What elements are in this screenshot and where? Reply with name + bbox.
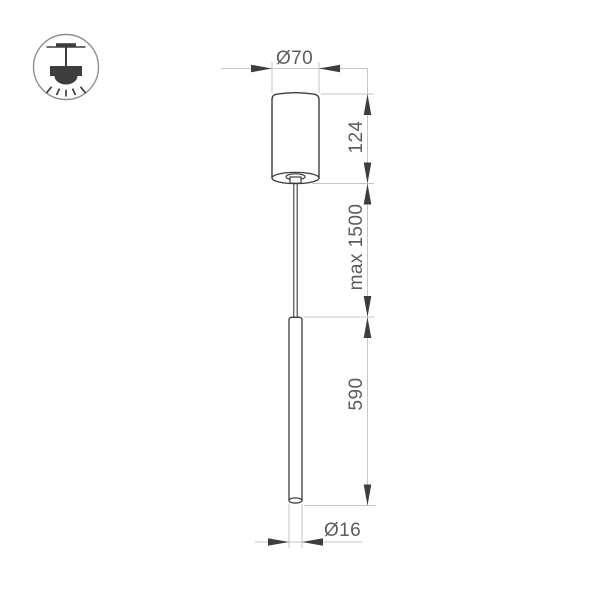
arrow-suspension-down — [364, 296, 372, 317]
icon-canopy-bar — [56, 43, 76, 47]
cord-grip-body — [290, 177, 301, 183]
label-canopy-height: 124 — [346, 121, 367, 154]
lamp-tube-bottom-rim — [289, 498, 302, 503]
arrow-bottom-diameter-left — [268, 538, 289, 546]
arrow-bottom-diameter-right — [302, 538, 323, 546]
label-suspension-length: max 1500 — [346, 204, 367, 291]
arrow-tube-length-down — [364, 485, 372, 506]
arrow-top-diameter-left — [251, 65, 272, 73]
label-tube-diameter: Ø16 — [324, 520, 361, 541]
icon-lamp-shade — [50, 66, 82, 76]
canopy-body — [272, 93, 319, 178]
arrow-tube-length-up — [364, 317, 372, 338]
pendant-lamp-outline — [272, 93, 319, 503]
label-tube-length: 590 — [346, 378, 367, 411]
arrow-canopy-height-up — [364, 94, 372, 115]
pendant-lamp-dimension-drawing: Ø70 124 max 1500 590 Ø16 — [0, 0, 600, 600]
arrow-top-diameter-right — [319, 65, 340, 73]
lamp-tube-body — [289, 317, 302, 500]
arrow-suspension-up — [364, 184, 372, 205]
label-top-diameter: Ø70 — [276, 48, 313, 69]
ceiling-pendant-light-icon — [34, 35, 99, 100]
drawing-canvas: Ø70 124 max 1500 590 Ø16 — [0, 0, 600, 600]
arrow-canopy-height-down — [364, 163, 372, 184]
